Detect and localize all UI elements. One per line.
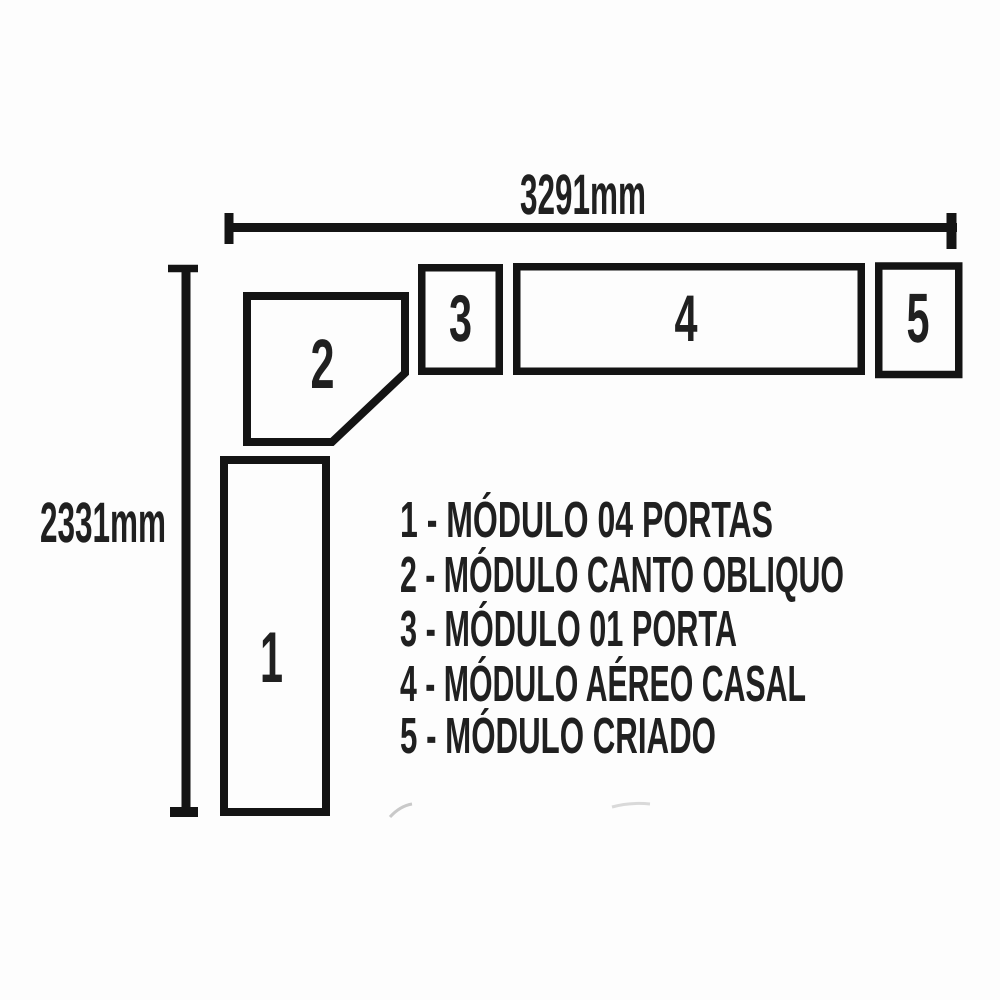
svg-text:5 - MÓDULO CRIADO: 5 - MÓDULO CRIADO bbox=[400, 707, 716, 764]
svg-text:1 - MÓDULO 04 PORTAS: 1 - MÓDULO 04 PORTAS bbox=[400, 491, 773, 548]
svg-text:2 - MÓDULO CANTO OBLIQUO: 2 - MÓDULO CANTO OBLIQUO bbox=[400, 546, 844, 603]
svg-text:3 - MÓDULO 01 PORTA: 3 - MÓDULO 01 PORTA bbox=[400, 600, 737, 657]
svg-text:4 - MÓDULO AÉREO CASAL: 4 - MÓDULO AÉREO CASAL bbox=[400, 655, 806, 712]
svg-text:2: 2 bbox=[311, 325, 335, 403]
svg-text:1: 1 bbox=[260, 618, 283, 698]
svg-text:5: 5 bbox=[907, 279, 930, 357]
svg-text:2331mm: 2331mm bbox=[40, 491, 166, 555]
svg-text:3291mm: 3291mm bbox=[520, 163, 646, 227]
svg-text:3: 3 bbox=[449, 281, 472, 355]
svg-text:4: 4 bbox=[675, 281, 698, 355]
